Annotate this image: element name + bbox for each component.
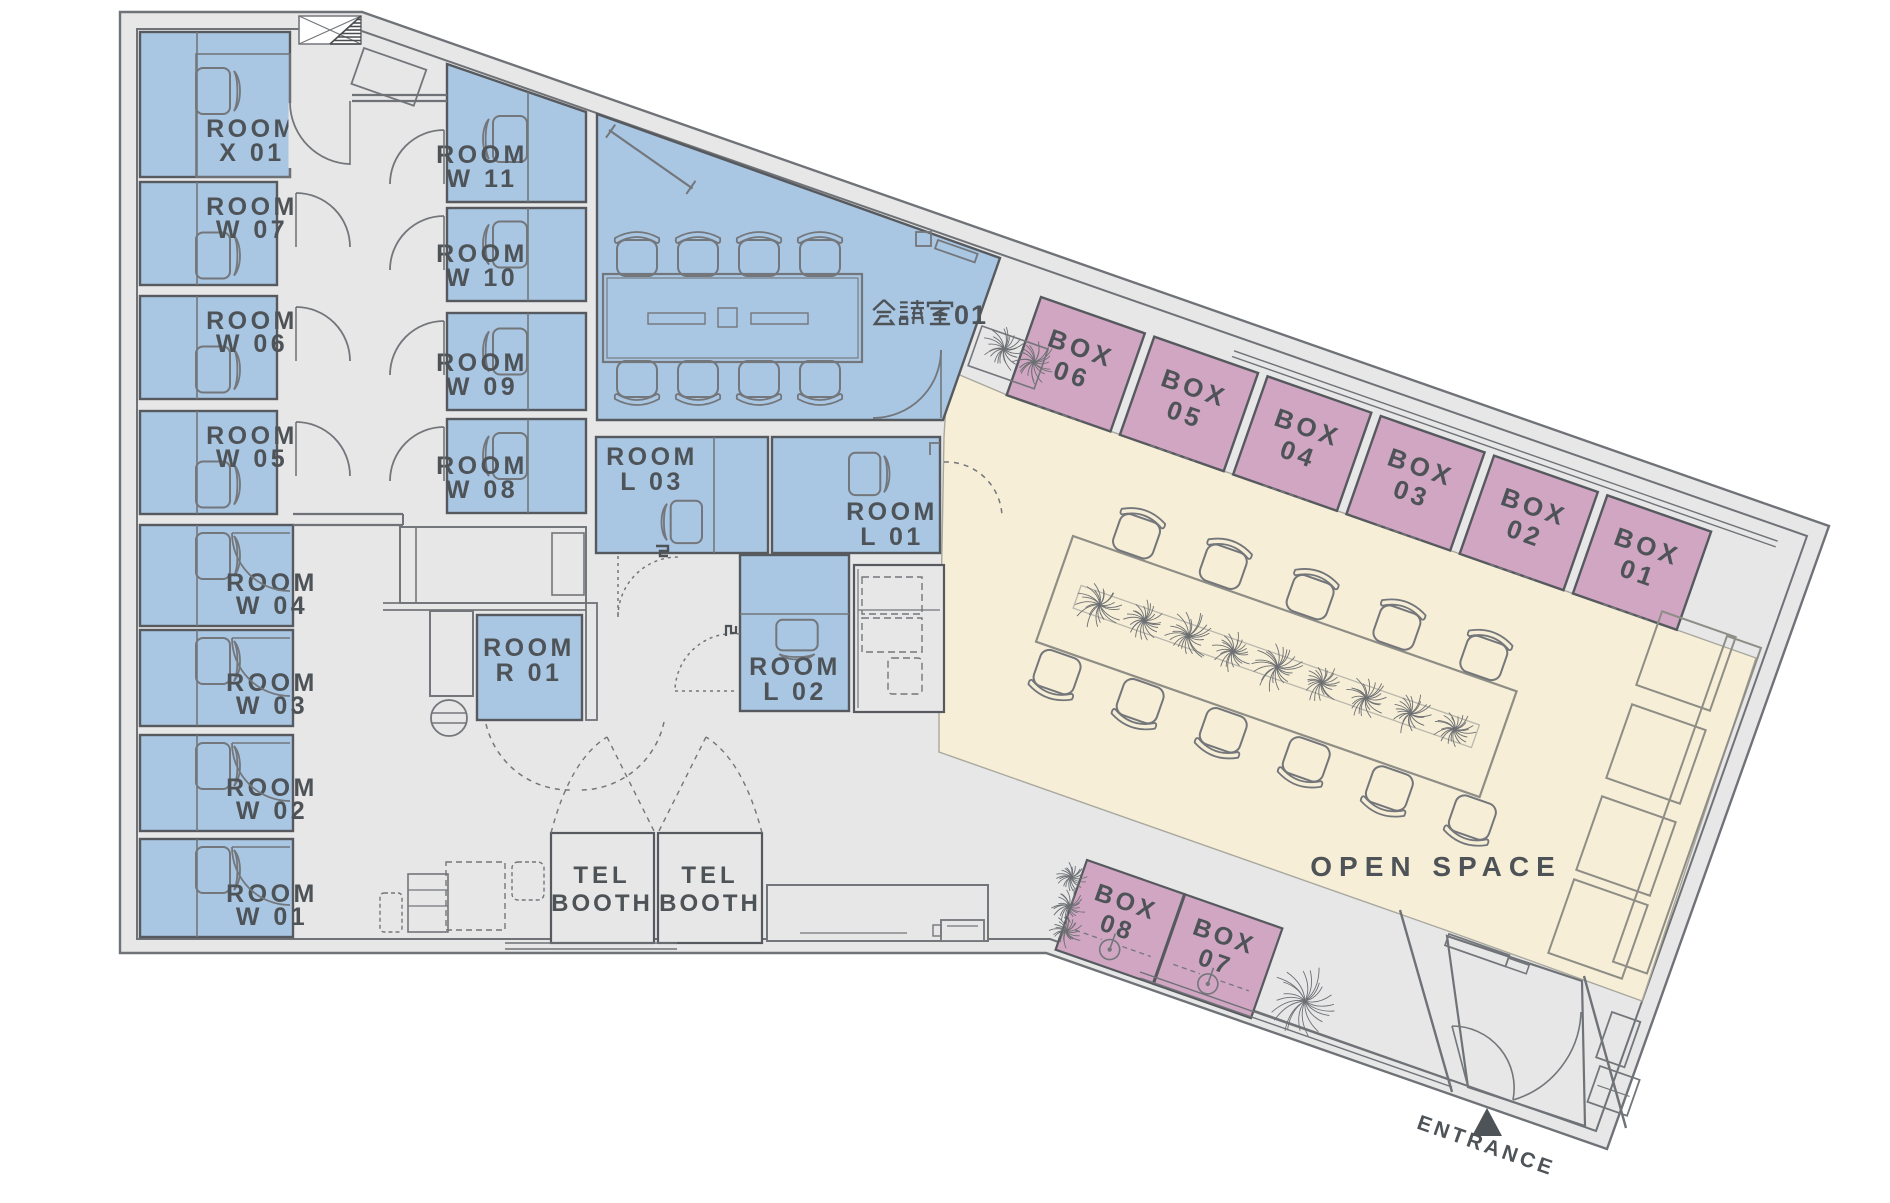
svg-text:BOOTH: BOOTH — [659, 890, 761, 917]
svg-text:W 11: W 11 — [447, 165, 518, 193]
svg-text:L 03: L 03 — [620, 468, 684, 496]
svg-text:R 01: R 01 — [496, 659, 563, 687]
svg-text:W 10: W 10 — [446, 264, 518, 292]
svg-text:BOOTH: BOOTH — [551, 890, 653, 917]
svg-text:W 01: W 01 — [236, 903, 308, 931]
svg-text:ROOM: ROOM — [483, 634, 575, 662]
svg-text:ROOM: ROOM — [846, 498, 938, 526]
svg-text:OPEN SPACE: OPEN SPACE — [1310, 851, 1562, 882]
svg-text:W 05: W 05 — [216, 445, 288, 473]
svg-text:L 02: L 02 — [763, 678, 827, 706]
svg-text:W 03: W 03 — [236, 692, 308, 720]
svg-text:ROOM: ROOM — [749, 653, 841, 681]
svg-text:W 04: W 04 — [236, 592, 308, 620]
svg-text:W 06: W 06 — [216, 330, 288, 358]
svg-text:W 07: W 07 — [216, 216, 288, 244]
svg-text:X 01: X 01 — [219, 139, 284, 167]
svg-text:L 01: L 01 — [860, 523, 924, 551]
svg-text:ROOM: ROOM — [606, 443, 698, 471]
svg-text:TEL: TEL — [573, 862, 630, 889]
svg-text:W 02: W 02 — [236, 797, 308, 825]
svg-text:W 08: W 08 — [446, 476, 518, 504]
svg-text:W 09: W 09 — [446, 373, 518, 401]
svg-text:TEL: TEL — [681, 862, 738, 889]
